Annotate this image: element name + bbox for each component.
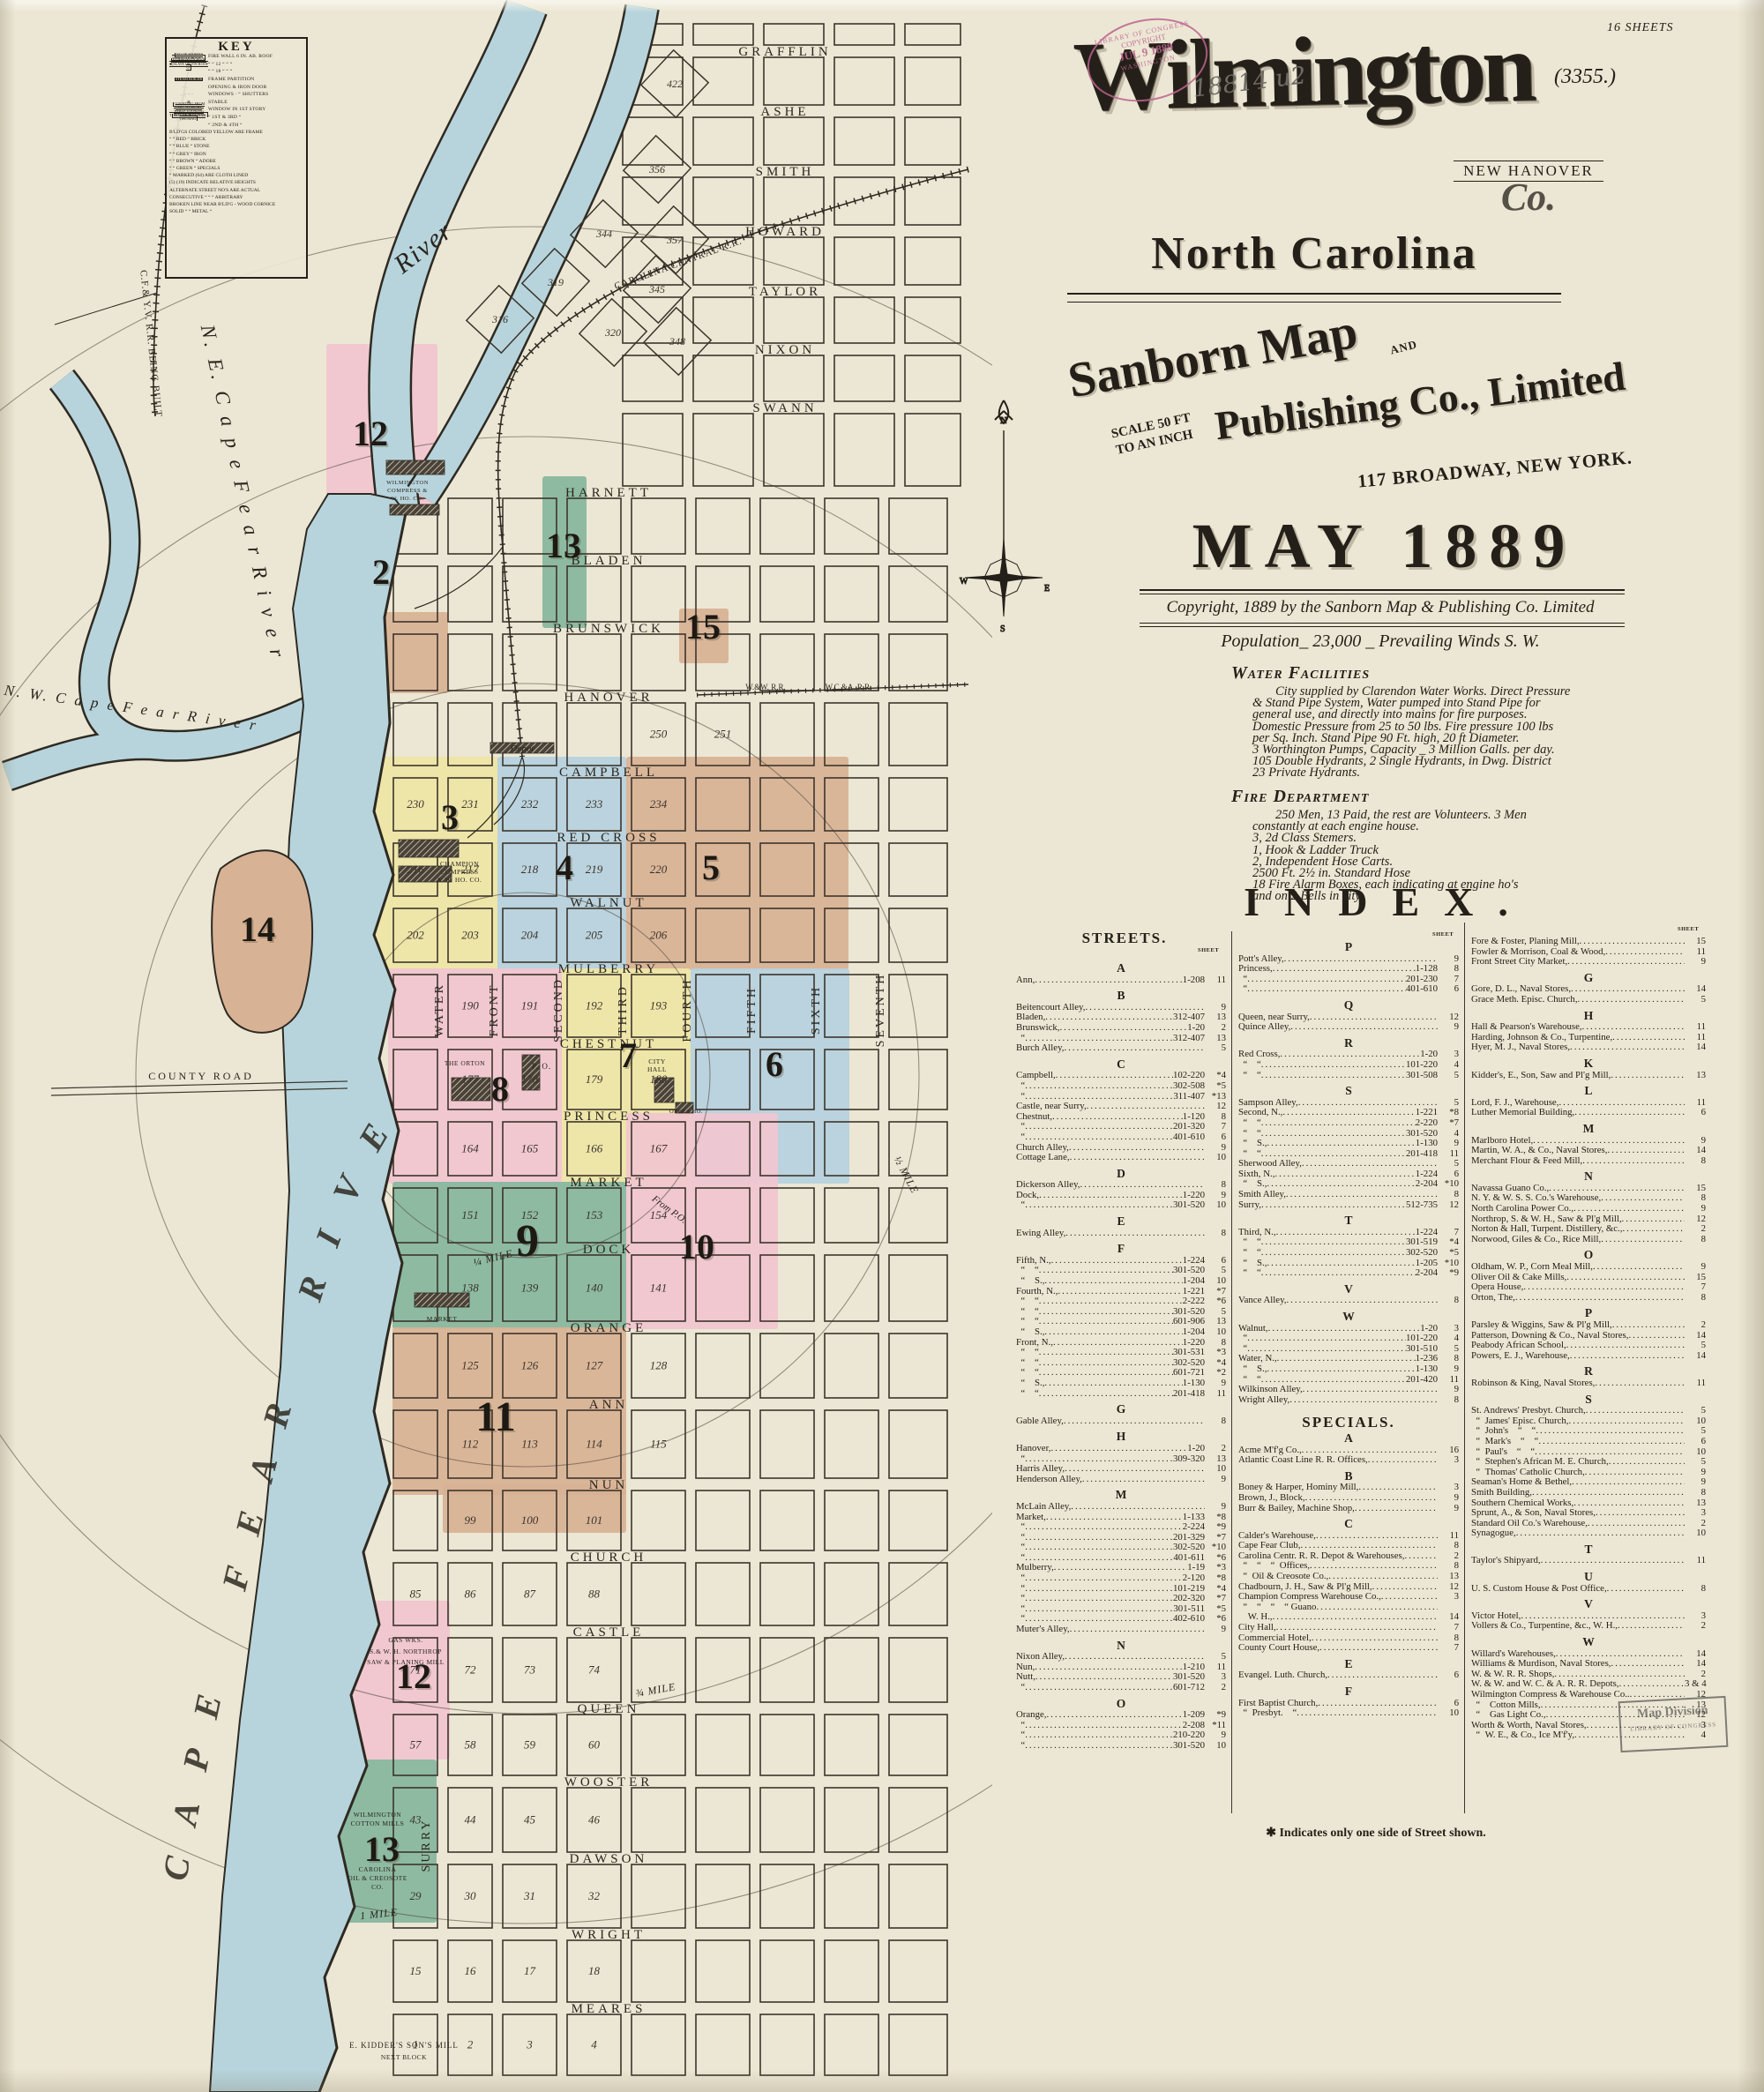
index-section-letter: T: [1238, 1215, 1459, 1226]
dot-leader: ........................................…: [1025, 1522, 1183, 1533]
entry-name: “ S.,: [1238, 1364, 1267, 1375]
block-number: 167: [650, 1142, 668, 1155]
dot-leader: ........................................…: [1622, 1224, 1685, 1235]
index-entry: Robinson & King, Naval Stores,..........…: [1471, 1378, 1706, 1389]
city-block: [889, 1188, 947, 1243]
index-entry: City Hall,..............................…: [1238, 1623, 1459, 1633]
dot-leader: ........................................…: [1267, 1179, 1415, 1190]
block-number: 73: [524, 1663, 536, 1677]
dot-leader: ........................................…: [1612, 1320, 1685, 1331]
dot-leader: ........................................…: [1319, 1643, 1438, 1654]
block-number: 166: [586, 1142, 603, 1155]
dot-leader: ........................................…: [1538, 1437, 1685, 1447]
index-section-letter: W: [1238, 1311, 1459, 1322]
key-row: OPENING & IRON DOOR: [169, 83, 303, 91]
dot-leader: ........................................…: [1558, 1098, 1685, 1109]
entry-sheet: 12: [1438, 1200, 1459, 1211]
dot-leader: ........................................…: [1536, 1426, 1685, 1437]
index-entry: Synagogue,..............................…: [1471, 1528, 1706, 1539]
entry-sheet: 8: [1685, 1156, 1706, 1167]
key-line: “ MARKED (64) ARE CLOTH LINED: [169, 172, 303, 179]
index-section-letter: F: [1016, 1244, 1226, 1254]
block-number: 191: [521, 999, 539, 1012]
entry-sheet: 5: [1685, 1406, 1706, 1416]
key-symbol: COMPOSIT'N ROOF ✱|SLATE OR TIN ROOF O: [169, 58, 208, 70]
rule: [1140, 623, 1625, 624]
entry-sheet: 3: [1438, 1592, 1459, 1603]
map-annotation: CO.: [371, 1883, 384, 1891]
entry-sheet: 6: [1438, 1670, 1459, 1681]
dot-leader: ........................................…: [1261, 1129, 1406, 1139]
city-block: [834, 177, 894, 225]
index-entry: “ S.,...................................…: [1016, 1276, 1226, 1287]
dot-leader: ........................................…: [1593, 1262, 1685, 1273]
city-block: [825, 566, 878, 622]
dot-leader: ........................................…: [1569, 1416, 1686, 1427]
key-text: FRAME PARTITION: [208, 77, 303, 82]
entry-name: Evangel. Luth. Church,: [1238, 1670, 1327, 1681]
index-section-letter: O: [1016, 1699, 1226, 1709]
index-column-1: AAnn,...................................…: [1016, 958, 1226, 1752]
city-block: [889, 1491, 947, 1550]
entry-range: 309-320: [1173, 1454, 1205, 1465]
index-entry: St. Andrews' Presbyt. Church,...........…: [1471, 1406, 1706, 1416]
map-annotation: & W. HO. CO.: [437, 876, 482, 884]
dot-leader: ........................................…: [1596, 1508, 1685, 1519]
city-block: [696, 1788, 750, 1852]
index-section-letter: N: [1016, 1640, 1226, 1651]
street-label: DOCK: [583, 1243, 635, 1257]
city-block: [889, 1638, 947, 1702]
block-number: 234: [650, 797, 668, 811]
dot-leader: ........................................…: [1571, 984, 1685, 995]
entry-sheet: 8: [1438, 1296, 1459, 1306]
index-entry: “ S.,...................................…: [1016, 1378, 1226, 1389]
street-label: SWANN: [752, 401, 817, 415]
entry-name: Brunswick,: [1016, 1023, 1059, 1034]
index-section-letter: G: [1471, 973, 1706, 983]
city-block: [889, 703, 947, 766]
entry-range: 2-204: [1416, 1179, 1438, 1190]
entry-name: Sprunt, A., & Son, Naval Stores,: [1471, 1508, 1596, 1519]
block-number: 126: [521, 1359, 539, 1372]
dot-leader: ........................................…: [1044, 1378, 1182, 1389]
street-label: CASTLE: [573, 1625, 645, 1640]
dot-leader: ........................................…: [1039, 1266, 1173, 1276]
city-block: [764, 24, 824, 45]
entry-range: 1-208: [1183, 975, 1205, 986]
entry-sheet: 14: [1685, 1351, 1706, 1362]
map-annotation: W.&W. R.R.: [745, 683, 786, 691]
dot-leader: ........................................…: [1515, 1293, 1685, 1304]
city-block: [825, 1715, 878, 1775]
entry-sheet: 11: [1685, 1022, 1706, 1033]
city-block: [760, 1864, 814, 1928]
dot-leader: ........................................…: [1574, 1108, 1685, 1118]
city-block: [760, 1788, 814, 1852]
entry-sheet: 10: [1205, 1327, 1226, 1338]
dot-leader: ........................................…: [1316, 1531, 1438, 1542]
dot-leader: ........................................…: [1618, 1621, 1685, 1632]
publisher-address: 117 BROADWAY, NEW YORK.: [1349, 446, 1641, 494]
entry-sheet: 14: [1685, 1042, 1706, 1053]
dot-leader: ........................................…: [1572, 1477, 1685, 1488]
entry-sheet: 4: [1438, 1060, 1459, 1071]
city-block: [693, 177, 753, 225]
city-block: [825, 1491, 878, 1550]
block-number: 220: [650, 863, 668, 876]
index-section-letter: S: [1238, 1086, 1459, 1096]
index-entry: Burch Alley,............................…: [1016, 1043, 1226, 1054]
dot-leader: ........................................…: [1573, 1204, 1685, 1214]
entry-name: Smith Building,: [1471, 1488, 1532, 1498]
block-number: 114: [586, 1438, 602, 1451]
street-label: ORANGE: [571, 1321, 647, 1335]
dot-leader: ........................................…: [1025, 1730, 1173, 1741]
sheet-numeral: 5: [702, 848, 720, 887]
index-entry: Fore & Foster, Planing Mill,............…: [1471, 937, 1706, 947]
entry-sheet: 11: [1685, 1378, 1706, 1389]
entry-name: “: [1016, 1081, 1025, 1092]
city-block: [834, 355, 894, 401]
street-label: HOWARD: [745, 225, 825, 239]
text-line: 23 Private Hydrants.: [1252, 767, 1641, 779]
index-section-letter: F: [1238, 1686, 1459, 1697]
entry-sheet: 10: [1205, 1153, 1226, 1163]
city-block: [696, 1715, 750, 1775]
city-block: [760, 1410, 814, 1478]
block-number: 125: [461, 1359, 479, 1372]
index-streets-header: STREETS.: [1023, 930, 1226, 947]
entry-name: Norwood, Giles & Co., Rice Mill,: [1471, 1235, 1601, 1245]
city-block: [905, 237, 960, 285]
city-block: [764, 355, 824, 401]
index-entry: Surry,..................................…: [1238, 1200, 1459, 1211]
index-entry: County Court House,.....................…: [1238, 1643, 1459, 1654]
block-number: 46: [588, 1813, 601, 1827]
index-entry: “ “.....................................…: [1238, 1071, 1459, 1081]
index-entry: Castle, near Surry,.....................…: [1016, 1102, 1226, 1112]
entry-name: Robinson & King, Naval Stores,: [1471, 1378, 1595, 1389]
dot-leader: ........................................…: [1280, 1050, 1420, 1060]
stamp-line: LIBRARY OF CONGRESS: [1621, 1721, 1725, 1733]
street-label: FOURTH: [681, 977, 694, 1042]
entry-sheet: 9: [1438, 1364, 1459, 1375]
dot-leader: ........................................…: [1025, 1122, 1173, 1132]
dot-leader: ........................................…: [1261, 1118, 1416, 1129]
entry-sheet: 10: [1685, 1528, 1706, 1539]
entry-range: 301-520: [1173, 1200, 1205, 1211]
map-annotation: CHAMPION: [440, 860, 479, 868]
block-number: 233: [586, 797, 603, 811]
index-entry: “ “.....................................…: [1238, 1118, 1459, 1129]
city-block: [448, 703, 492, 766]
block-number: 85: [410, 1588, 422, 1601]
city-block: [632, 1563, 685, 1625]
dot-leader: ........................................…: [1305, 1493, 1438, 1504]
dot-leader: ........................................…: [1064, 1043, 1205, 1054]
entry-range: 302-520: [1406, 1248, 1438, 1259]
entry-name: Harris Alley,: [1016, 1464, 1065, 1475]
key-line: SOLID “ “ METAL “: [169, 208, 303, 215]
index-section-letter: E: [1016, 1216, 1226, 1227]
city-block: [760, 1715, 814, 1775]
city-block: [696, 1563, 750, 1625]
key-row: ·· ·· ··WINDOWS · “ SHUTTERS: [169, 91, 303, 99]
map-annotation: NEXT BLOCK: [381, 2053, 427, 2061]
dot-leader: ........................................…: [1612, 1033, 1685, 1043]
dot-leader: ........................................…: [1082, 1475, 1205, 1485]
street-label: BLADEN: [572, 554, 647, 568]
state-title: North Carolina: [1041, 228, 1588, 280]
key-line: “ “ GREY “ IRON: [169, 151, 303, 158]
city-block: [834, 57, 894, 105]
street-label: MULBERRY: [558, 962, 660, 976]
city-block: [889, 1940, 947, 2002]
index-section-letter: L: [1471, 1086, 1706, 1096]
dot-leader: ........................................…: [1273, 964, 1416, 975]
city-block: [696, 1334, 750, 1398]
index-entry: “ S.,...................................…: [1016, 1327, 1226, 1338]
entry-sheet: 6: [1685, 1108, 1706, 1118]
dot-leader: ........................................…: [1025, 1081, 1173, 1092]
map-annotation: WILMINGTON: [354, 1811, 402, 1819]
entry-name: “: [1016, 1573, 1025, 1584]
block-number: 218: [521, 863, 539, 876]
entry-sheet: 7: [1438, 1623, 1459, 1633]
rule: [1140, 594, 1625, 594]
dot-leader: ........................................…: [1035, 1662, 1183, 1673]
dot-leader: ........................................…: [1039, 1191, 1183, 1201]
block-number: 357: [666, 234, 684, 246]
dot-leader: ........................................…: [1290, 1022, 1438, 1033]
dot-leader: ........................................…: [1025, 1604, 1173, 1615]
dot-leader: ........................................…: [1267, 1259, 1415, 1269]
dot-leader: ........................................…: [1567, 957, 1685, 968]
entry-sheet: 9: [1685, 957, 1706, 968]
dot-leader: ........................................…: [1058, 1287, 1182, 1297]
dot-leader: ........................................…: [1276, 1228, 1416, 1238]
city-block: [764, 414, 824, 486]
city-block: [889, 908, 947, 962]
city-block: [834, 237, 894, 285]
dot-leader: ........................................…: [1039, 1358, 1173, 1369]
city-block: [632, 1788, 685, 1852]
index-entry: Henderson Alley,........................…: [1016, 1475, 1226, 1485]
block-number: 164: [461, 1142, 479, 1155]
block-number: 4: [591, 2038, 597, 2051]
city-block: [632, 1491, 685, 1550]
entry-name: McLain Alley,: [1016, 1502, 1071, 1513]
block-number: 190: [461, 999, 479, 1012]
entry-range: 1-204: [1183, 1276, 1205, 1287]
entry-name: Fore & Foster, Planing Mill,: [1471, 937, 1580, 947]
dot-leader: ........................................…: [1586, 1406, 1685, 1416]
key-row: “ 2ND & 4TH “: [169, 121, 303, 129]
entry-name: Ewing Alley,: [1016, 1229, 1065, 1239]
map-annotation: N. E. C a p e F e a r R i v e r: [197, 322, 289, 662]
map-annotation: E. KIDDER'S SON'S MILL: [349, 2041, 459, 2050]
street-label: RED CROSS: [557, 831, 660, 845]
sheet-numeral: 13: [364, 1829, 400, 1869]
city-block: [760, 2014, 814, 2075]
entry-sheet: 11: [1205, 975, 1226, 986]
entry-range: 2-204: [1416, 1268, 1438, 1279]
dot-leader: ........................................…: [1044, 1276, 1182, 1287]
map-annotation: W.C.&A. R.R.: [826, 683, 872, 691]
block-number: 44: [465, 1813, 477, 1827]
entry-range: 2-120: [1183, 1573, 1205, 1584]
city-block: [889, 1255, 947, 1321]
city-block: [693, 117, 753, 165]
compass-west-label: W: [960, 577, 968, 587]
fire-department-heading: Fire Department: [1231, 787, 1369, 807]
city-block: [623, 355, 683, 401]
dot-leader: ........................................…: [1580, 937, 1685, 947]
index-entry: “ S.,...................................…: [1238, 1364, 1459, 1375]
dot-leader: ........................................…: [1039, 1348, 1173, 1358]
index-entry: Merchant Flour & Feed Mill,.............…: [1471, 1156, 1706, 1167]
sheet-numeral: 9: [516, 1216, 539, 1266]
entry-name: Hyer, M. J., Naval Stores,: [1471, 1042, 1570, 1053]
entry-name: Brown, J., Block,: [1238, 1493, 1305, 1504]
entry-name: Hall & Pearson's Warehouse,: [1471, 1022, 1582, 1033]
entry-name: Burr & Bailey, Machine Shop,: [1238, 1504, 1355, 1514]
dot-leader: ........................................…: [1286, 1296, 1438, 1306]
entry-sheet: 2: [1685, 1320, 1706, 1331]
entry-sheet: 9: [1685, 1262, 1706, 1273]
index-section-letter: A: [1016, 963, 1226, 974]
dot-leader: ........................................…: [1523, 1282, 1685, 1293]
city-block: [905, 117, 960, 165]
entry-sheet: 6: [1205, 1132, 1226, 1143]
entry-name: Atlantic Coast Line R. R. Offices,: [1238, 1455, 1368, 1466]
index-entry: U. S. Custom House & Post Office,.......…: [1471, 1584, 1706, 1595]
entry-range: 201-420: [1406, 1375, 1438, 1386]
index-section-letter: H: [1016, 1431, 1226, 1442]
street-label: TAYLOR: [749, 285, 821, 299]
dot-leader: ........................................…: [1261, 1248, 1406, 1259]
key-symbol: ·· ·· ··: [169, 93, 208, 96]
dot-leader: ........................................…: [1064, 1416, 1205, 1427]
city-block: [696, 1638, 750, 1702]
key-line: “ “ RED “ BRICK: [169, 136, 303, 143]
street-label: GRAFFLIN: [738, 45, 831, 59]
city-block: [825, 1638, 878, 1702]
index-entry: Ewing Alley,............................…: [1016, 1229, 1226, 1239]
entry-range: 1-20: [1187, 1444, 1205, 1454]
stamp-line: Map Division: [1620, 1703, 1725, 1722]
key-line: CONSECUTIVE “ “ “ ARBITRARY: [169, 194, 303, 201]
entry-sheet: 3: [1685, 1508, 1706, 1519]
street-label: MARKET: [570, 1176, 647, 1190]
dot-leader: ........................................…: [1316, 1603, 1438, 1613]
key-line: B'LD'GS COLORED YELLOW ARE FRAME: [169, 129, 303, 136]
entry-name: “ “: [1238, 1060, 1261, 1071]
index-entry: Burr & Bailey, Machine Shop,............…: [1238, 1504, 1459, 1514]
key-row: STEAM BOILERFRAME PARTITION: [169, 76, 303, 84]
dot-leader: ........................................…: [1310, 1012, 1438, 1023]
entry-name: St. Andrews' Presbyt. Church,: [1471, 1406, 1586, 1416]
city-block: [889, 1864, 947, 1928]
dot-leader: ........................................…: [1268, 1324, 1421, 1334]
city-block: [393, 1491, 437, 1550]
city-block: [632, 1864, 685, 1928]
city-block: [693, 355, 753, 401]
entry-name: Henderson Alley,: [1016, 1475, 1082, 1485]
block-number: 17: [524, 1964, 536, 1977]
city-map: 422356357344345319316320348 230231232233…: [0, 0, 992, 2092]
index-section-letter: H: [1471, 1011, 1706, 1021]
index-entry: North Carolina Power Co.,...............…: [1471, 1204, 1706, 1214]
entry-name: Vollers & Co., Turpentine, &c., W. H.,: [1471, 1621, 1618, 1632]
city-block: [448, 566, 492, 622]
block-number: 202: [407, 929, 424, 942]
dot-leader: ........................................…: [1588, 1519, 1685, 1529]
city-block: [889, 1563, 947, 1625]
key-symbol: DOT REPRESENTS OPENING: [169, 114, 208, 122]
index-section-letter: R: [1238, 1038, 1459, 1049]
street-label: SIXTH: [810, 985, 823, 1035]
block-number: 74: [588, 1663, 601, 1677]
dot-leader: ........................................…: [1247, 975, 1406, 985]
dot-leader: ........................................…: [1404, 1551, 1438, 1562]
dot-leader: ........................................…: [1607, 1146, 1685, 1156]
dot-leader: ........................................…: [1046, 1513, 1183, 1523]
entry-name: Front Street City Market,: [1471, 957, 1567, 968]
city-block: [905, 24, 960, 45]
index-entry: “ Stephen's African M. E. Church,.......…: [1471, 1457, 1706, 1468]
index-section-letter: B: [1016, 990, 1226, 1001]
index-section-letter: C: [1238, 1519, 1459, 1529]
street-label: SECOND: [552, 977, 565, 1042]
dot-leader: ........................................…: [1087, 1102, 1205, 1112]
block-number: 216: [407, 863, 424, 876]
entry-name: “: [1016, 1741, 1025, 1752]
block-number: 232: [521, 797, 539, 811]
dot-leader: ........................................…: [1381, 1592, 1438, 1603]
index-section-letter: P: [1471, 1308, 1706, 1319]
block-number: 251: [714, 728, 732, 741]
map-annotation: HALL: [647, 1065, 667, 1073]
entry-name: “ S.,: [1016, 1378, 1044, 1389]
entry-name: Orton, The,: [1471, 1293, 1515, 1304]
entry-range: 601-712: [1173, 1683, 1205, 1693]
entry-sheet: 5: [1438, 1071, 1459, 1081]
dot-leader: ........................................…: [1039, 1296, 1183, 1307]
entry-range: 401-610: [1406, 984, 1438, 995]
key-line: BROKEN LINE NEAR B'LD'G - WOOD CORNICE: [169, 201, 303, 208]
block-number: 113: [521, 1438, 538, 1451]
key-text: WINDOW IN 1ST STORY: [208, 107, 303, 112]
compass-star: [965, 539, 1043, 616]
entry-sheet: 8: [1685, 1293, 1706, 1304]
city-block: [889, 498, 947, 554]
city-block: [623, 414, 683, 486]
city-block: [696, 498, 750, 554]
index-entry: Front Street City Market,...............…: [1471, 957, 1706, 968]
dot-leader: ........................................…: [1267, 1139, 1415, 1149]
block-number: 205: [586, 929, 603, 942]
sheet-numeral: 8: [491, 1069, 509, 1109]
entry-range: 2-220: [1416, 1118, 1438, 1129]
entry-sheet: 8: [1205, 1416, 1226, 1427]
block-number: 15: [410, 1964, 422, 1977]
index-footnote: ✱ Indicates only one side of Street show…: [1138, 1826, 1614, 1841]
index-entry: Vance Alley,............................…: [1238, 1296, 1459, 1306]
block-number: 356: [648, 163, 665, 176]
block-number: 204: [521, 929, 539, 942]
